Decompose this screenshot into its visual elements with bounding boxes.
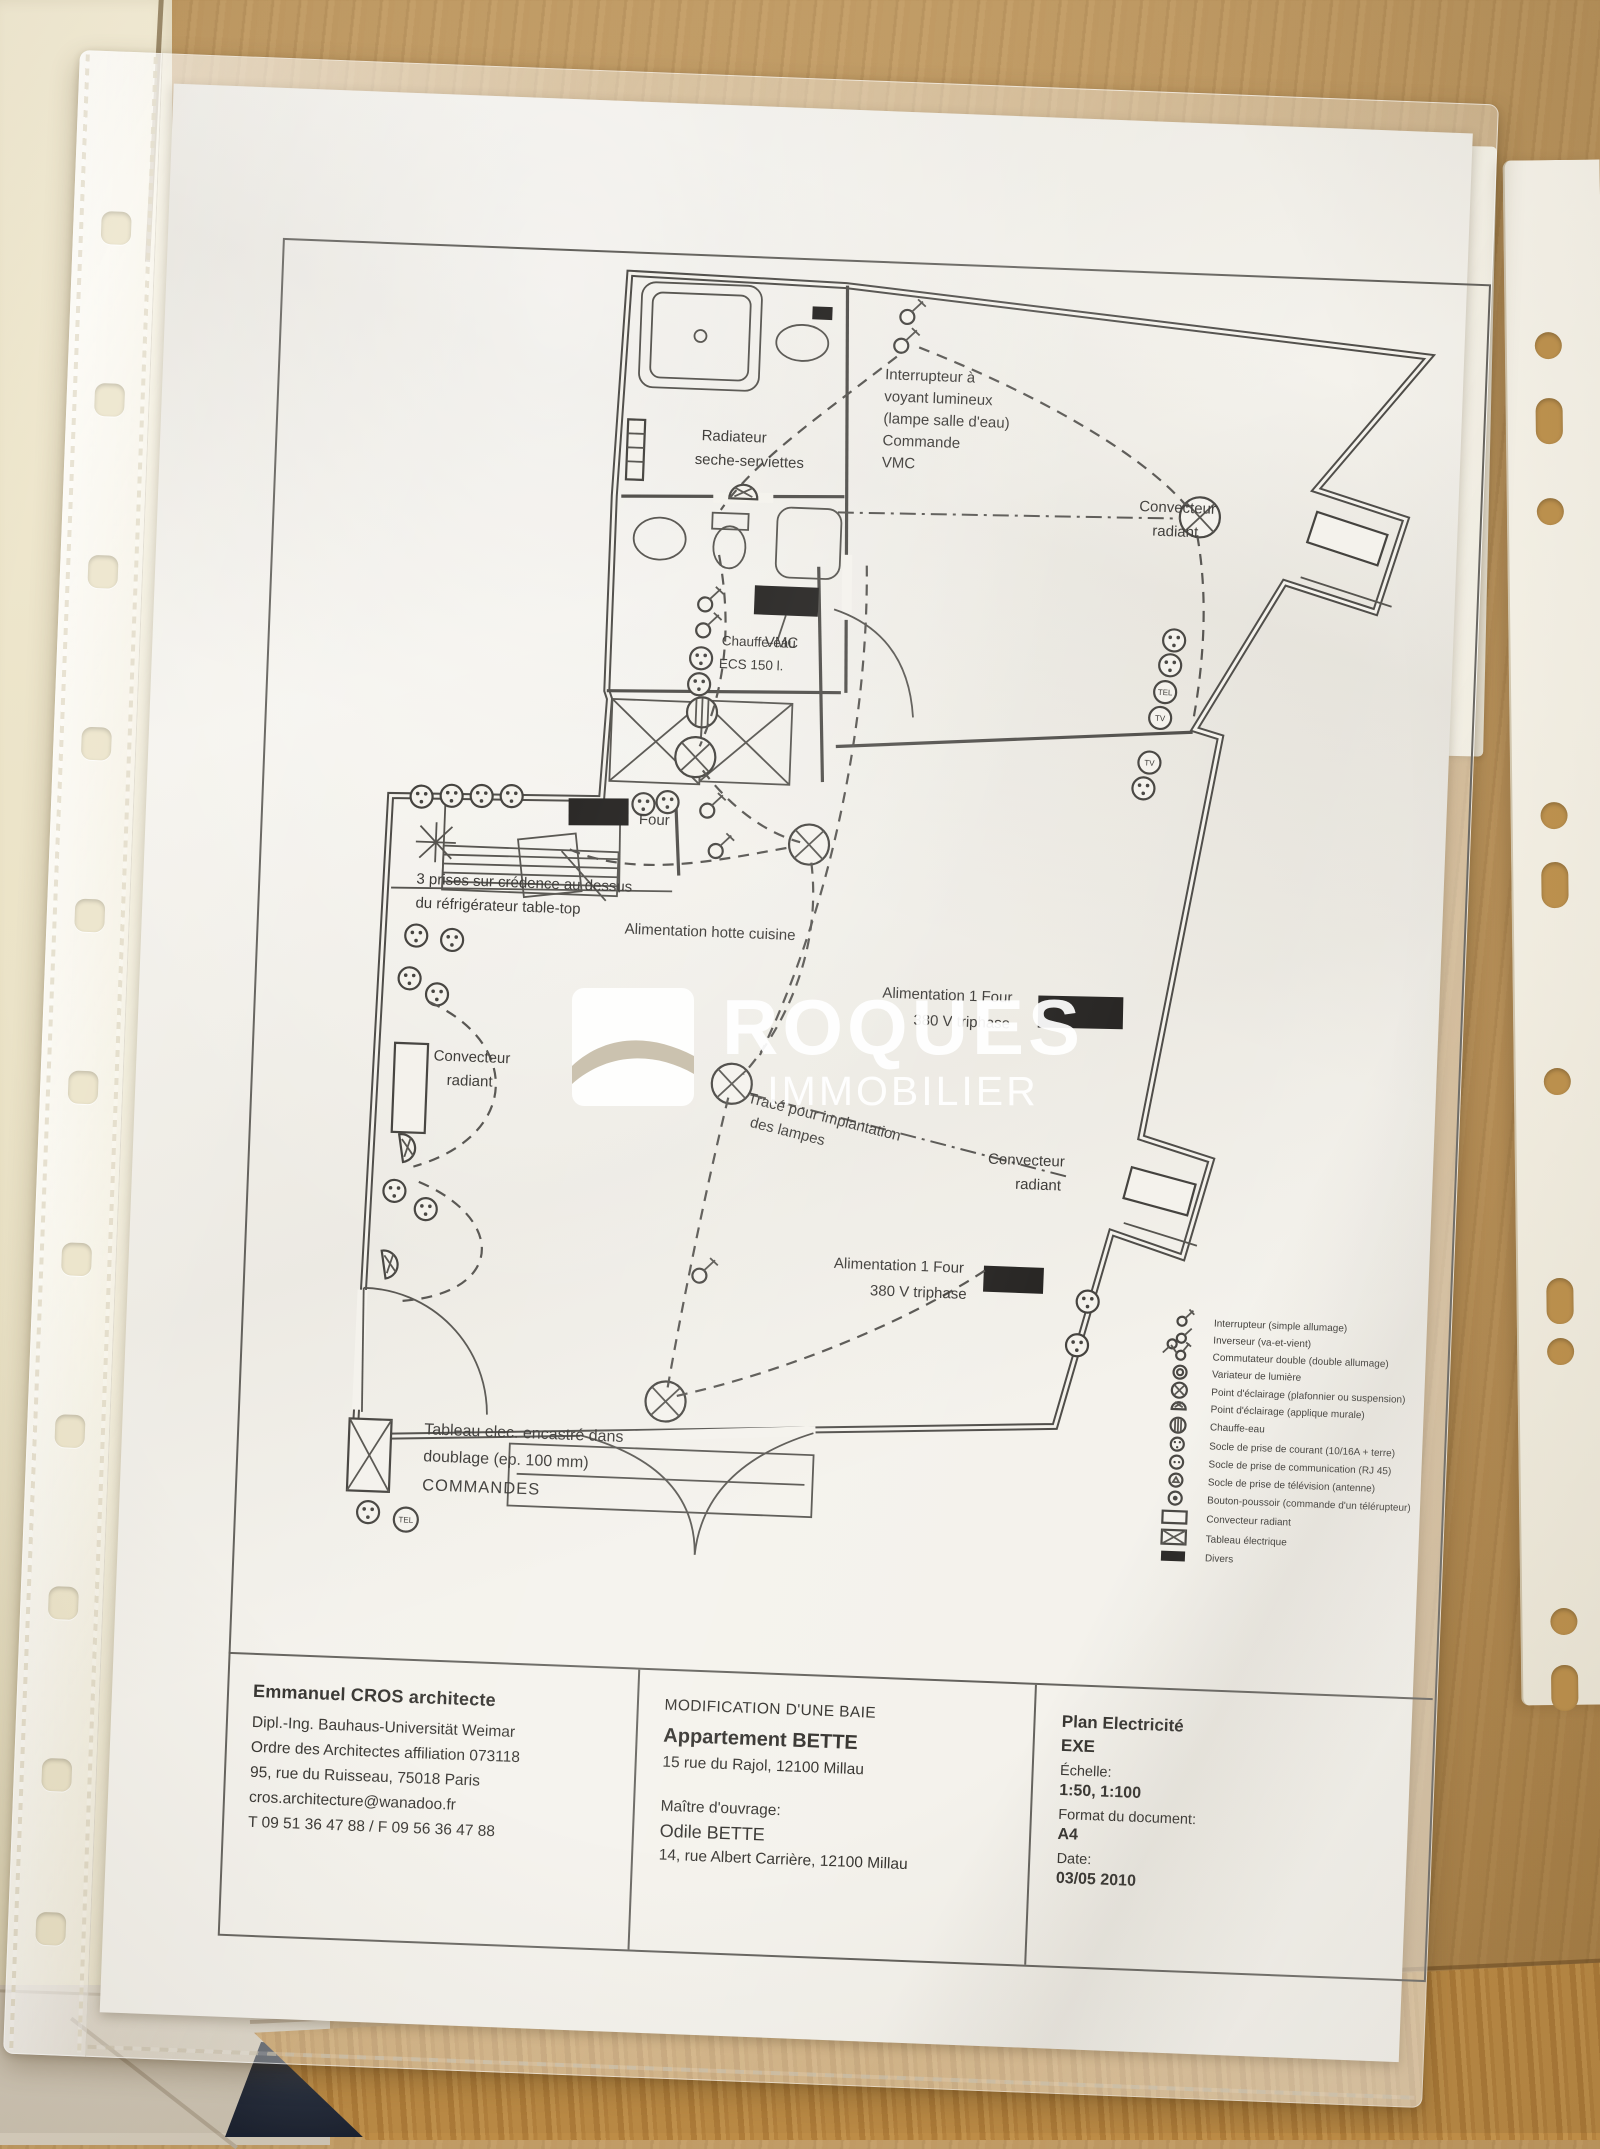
label-commandes: COMMANDES xyxy=(422,1476,541,1499)
label-interrupteur: voyant lumineux xyxy=(884,388,993,409)
label-alim2: Alimentation 1 Four xyxy=(834,1255,965,1277)
tv-socket-label: TV xyxy=(1144,758,1155,767)
legend-label: Socle de prise de communication (RJ 45) xyxy=(1208,1459,1391,1477)
legend-symbol-chauffe-eau xyxy=(1170,1417,1186,1433)
label-interrupteur: (lampe salle d'eau) xyxy=(883,410,1010,432)
legend-label: Point d'éclairage (plafonnier ou suspens… xyxy=(1211,1387,1406,1405)
right-wall-devices: TEL TV TV xyxy=(690,612,1186,1359)
label-interrupteur: Commande xyxy=(882,432,960,452)
circuit-traces xyxy=(395,329,1214,1415)
legend-symbol-prise-courant xyxy=(1171,1437,1184,1450)
binder-hole xyxy=(74,898,105,932)
title-block-doc: Plan Electricité EXE Échelle: 1:50, 1:10… xyxy=(1025,1685,1433,1980)
label-interrupteur: VMC xyxy=(881,454,915,472)
label-chauffe-eau: ECS 150 l. xyxy=(719,656,784,673)
legend-label: Chauffe-eau xyxy=(1210,1422,1265,1435)
convecteur-left-symbol xyxy=(392,1043,428,1133)
binder-hole xyxy=(87,555,118,589)
legend-label: Socle de prise de télévision (antenne) xyxy=(1208,1477,1376,1494)
plastic-sleeve-with-plan: TEL TV TV TEL xyxy=(3,50,1499,2108)
light-entry xyxy=(645,1381,687,1423)
architect-name: Emmanuel CROS architecte xyxy=(253,1681,619,1716)
title-block-project: MODIFICATION D'UNE BAIE Appartement BETT… xyxy=(627,1670,1035,1965)
legend-symbol-convecteur xyxy=(1162,1511,1186,1524)
legend-symbol-plafonnier xyxy=(1172,1382,1188,1398)
binder-hole xyxy=(101,211,132,245)
legend-label: Point d'éclairage (applique murale) xyxy=(1210,1404,1365,1421)
legend-label: Bouton-poussoir (commande d'un télérupte… xyxy=(1207,1495,1411,1514)
binder-hole xyxy=(35,1912,66,1946)
legend-label: Convecteur radiant xyxy=(1206,1514,1291,1528)
legend-symbol-prise-communication xyxy=(1170,1455,1183,1468)
punched-hole xyxy=(1544,1068,1571,1095)
floor-plan-drawing: TEL TV TV TEL xyxy=(229,238,1487,1698)
label-convecteur-tr: radiant xyxy=(1152,523,1199,542)
project-operation: MODIFICATION D'UNE BAIE xyxy=(664,1697,1016,1728)
legend: Interrupteur (simple allumage) Inverseur… xyxy=(1155,1309,1418,1573)
label-alim1: Alimentation 1 Four xyxy=(882,985,1013,1007)
light-hall xyxy=(675,736,717,778)
label-hotte: Alimentation hotte cuisine xyxy=(624,921,795,945)
punched-hole xyxy=(1537,498,1564,525)
punched-hole xyxy=(1540,802,1567,829)
legend-symbol-bouton-poussoir xyxy=(1168,1491,1181,1504)
legend-label: Variateur de lumière xyxy=(1212,1369,1302,1383)
legend-symbol-variateur xyxy=(1173,1365,1186,1378)
punched-hole xyxy=(1535,398,1563,444)
label-convecteur-mr: radiant xyxy=(1015,1176,1062,1195)
star-symbol xyxy=(415,821,457,863)
binder-hole xyxy=(61,1242,92,1276)
label-chauffe-eau: Chauffe-eau xyxy=(722,633,797,651)
plan-labels: Interrupteur à voyant lumineux (lampe sa… xyxy=(393,349,1221,1523)
switch-voyant xyxy=(900,299,926,325)
switch-voyant xyxy=(894,327,920,353)
label-radiateur: Radiateur xyxy=(701,427,767,446)
label-convecteur-tr: Convecteur xyxy=(1139,498,1216,518)
legend-label: Socle de prise de courant (10/16A + terr… xyxy=(1209,1441,1395,1459)
legend-symbol-applique xyxy=(1172,1402,1186,1410)
legend-label: Interrupteur (simple allumage) xyxy=(1214,1318,1348,1334)
label-convecteur-left: radiant xyxy=(446,1072,493,1091)
legend-symbol-prise-television xyxy=(1169,1473,1182,1486)
legend-symbol-tableau xyxy=(1161,1530,1186,1545)
legend-label: Divers xyxy=(1205,1553,1234,1565)
label-interrupteur: Interrupteur à xyxy=(885,366,976,386)
label-convecteur-left: Convecteur xyxy=(433,1047,510,1067)
light-center xyxy=(711,1063,753,1105)
label-convecteur-mr: Convecteur xyxy=(988,1151,1065,1171)
punched-hole xyxy=(1541,862,1569,908)
title-block: Emmanuel CROS architecte Dipl.-Ing. Bauh… xyxy=(218,1652,1433,1980)
binder-hole xyxy=(48,1586,79,1620)
label-tableau: doublage (ep. 100 mm) xyxy=(423,1448,589,1471)
binder-hole xyxy=(94,383,125,417)
light-kitchen xyxy=(788,824,830,866)
punched-hole xyxy=(1535,332,1562,359)
punched-hole xyxy=(1546,1278,1574,1324)
binder-hole xyxy=(54,1414,85,1448)
tel-socket-label: TEL xyxy=(398,1515,414,1525)
binder-hole xyxy=(68,1070,99,1104)
legend-label: Inverseur (va-et-vient) xyxy=(1213,1335,1311,1350)
wc-room xyxy=(630,481,843,642)
four-redaction xyxy=(569,798,629,825)
legend-symbol-interrupteur-simple xyxy=(1177,1309,1194,1326)
redacted-box xyxy=(1038,995,1124,1029)
label-prises: du réfrigérateur table-top xyxy=(415,895,581,918)
legend-label: Commutateur double (double allumage) xyxy=(1212,1352,1389,1370)
binder-hole xyxy=(81,727,112,761)
legend-symbol-inverseur xyxy=(1163,1328,1192,1354)
legend-label: Tableau électrique xyxy=(1205,1534,1287,1548)
tel-socket-label: TEL xyxy=(1158,688,1174,698)
tv-socket-label: TV xyxy=(1155,714,1166,723)
legend-symbol-divers xyxy=(1161,1551,1185,1562)
second-plastic-sleeve xyxy=(1503,159,1600,1705)
redacted-box xyxy=(983,1266,1044,1294)
punched-hole xyxy=(1547,1338,1574,1365)
punched-hole xyxy=(1550,1608,1577,1635)
label-alim1: 380 V triphase xyxy=(913,1012,1010,1033)
vmc-unit xyxy=(754,585,819,616)
label-alim2: 380 V triphase xyxy=(870,1282,967,1303)
punched-hole xyxy=(1551,1665,1579,1711)
plan-sheet: TEL TV TV TEL xyxy=(100,84,1473,2062)
binder-hole xyxy=(41,1758,72,1792)
label-tableau: Tableau elec. encastré dans xyxy=(424,1421,624,1446)
label-radiateur: seche-serviettes xyxy=(694,451,804,472)
label-four: Four xyxy=(639,811,670,829)
title-block-architect: Emmanuel CROS architecte Dipl.-Ing. Bauh… xyxy=(218,1654,638,1950)
